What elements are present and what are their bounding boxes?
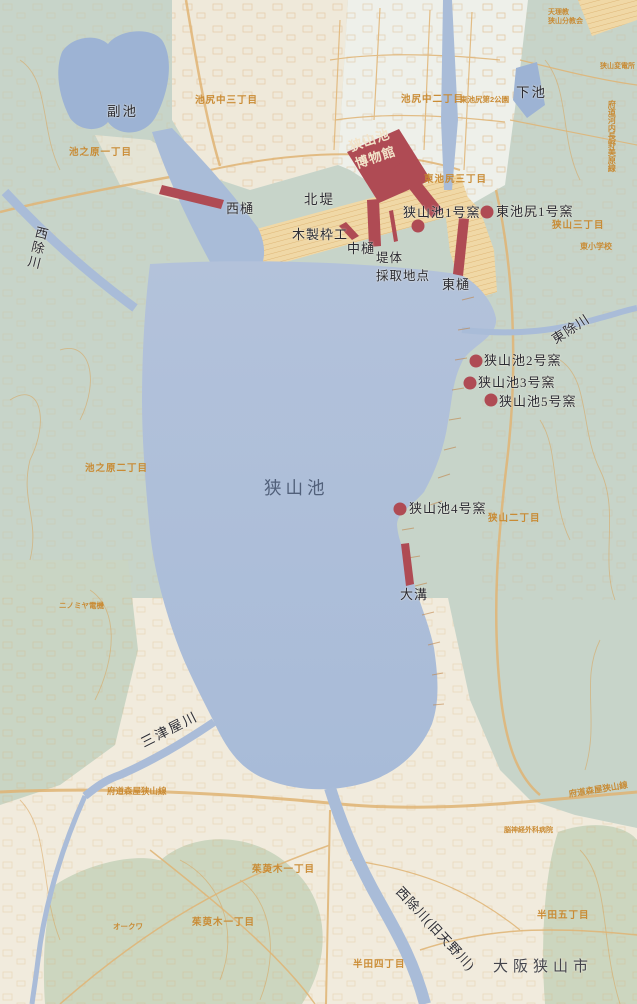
kiln2-marker [470,355,483,368]
label-north-dike: 北堤 [304,191,335,209]
label-higashi-ikejiri-kiln1: 東池尻1号窯 [496,204,574,221]
label-higashi-ikejiri3: 東池尻三丁目 [424,174,487,186]
label-wooden-frame: 木製枠工 [292,227,348,244]
label-ninomiya: ニノミヤ電機 [59,601,104,611]
higashi-ikejiri-kiln1-marker [481,206,494,219]
label-kiln3: 狭山池3号窯 [478,375,556,392]
label-embankment-sampling: 堤体 採取地点 [376,249,430,285]
label-west-sluice: 西樋 [226,201,254,218]
label-kiln4: 狭山池4号窯 [409,501,487,518]
label-east-sluice: 東樋 [442,277,470,294]
label-ikejiri-naka2: 池尻中二丁目 [401,94,464,106]
label-ikejiri-naka3: 池尻中三丁目 [195,95,258,107]
label-pref-road-kawachi: 府道河内長野美原線 [606,100,616,172]
label-sayama2: 狭山二丁目 [488,513,541,525]
kiln5-marker [485,394,498,407]
label-kiln2: 狭山池2号窯 [484,353,562,370]
middle-sluice-bar [367,199,381,247]
label-handa5: 半田五丁目 [537,910,590,922]
label-ikenohara1: 池之原一丁目 [69,147,132,159]
label-higashi-elementary: 東小学校 [580,242,612,252]
label-sub-pond: 副池 [107,103,138,121]
label-kiln5: 狭山池5号窯 [499,394,577,411]
label-higashi-ikejiri-park: 東池尻第2公園 [460,95,509,105]
label-kiln1: 狭山池1号窯 [403,205,481,222]
label-hospital: 脳神経外科病院 [504,826,553,835]
label-okuwa: オークワ [113,922,143,932]
label-ikenohara2: 池之原二丁目 [85,463,148,475]
label-kuminoki1-north: 茱萸木一丁目 [252,864,315,876]
label-omizo: 大溝 [400,587,428,604]
label-handa4: 半田四丁目 [353,959,406,971]
topographic-map-sayamaike: 副池 下池 北堤 西樋 木製枠工 中樋 堤体 採取地点 東樋 狭山池 博物館 狭… [0,0,637,1004]
label-city-osakasayama: 大阪狭山市 [493,958,593,978]
kiln4-marker [394,503,407,516]
label-sayama-lake: 狭山池 [264,477,329,500]
label-moriya-road-west: 府道森屋狭山線 [107,786,167,797]
label-substation: 狭山変電所 [600,62,635,71]
label-sayama3: 狭山三丁目 [552,220,605,232]
label-middle-sluice: 中樋 [347,241,375,258]
label-kuminoki1-south: 茱萸木一丁目 [192,917,255,929]
label-tenrikyo: 天理教 狭山分教会 [548,8,583,26]
label-shimo-pond: 下池 [516,84,547,102]
kiln3-marker [464,377,477,390]
